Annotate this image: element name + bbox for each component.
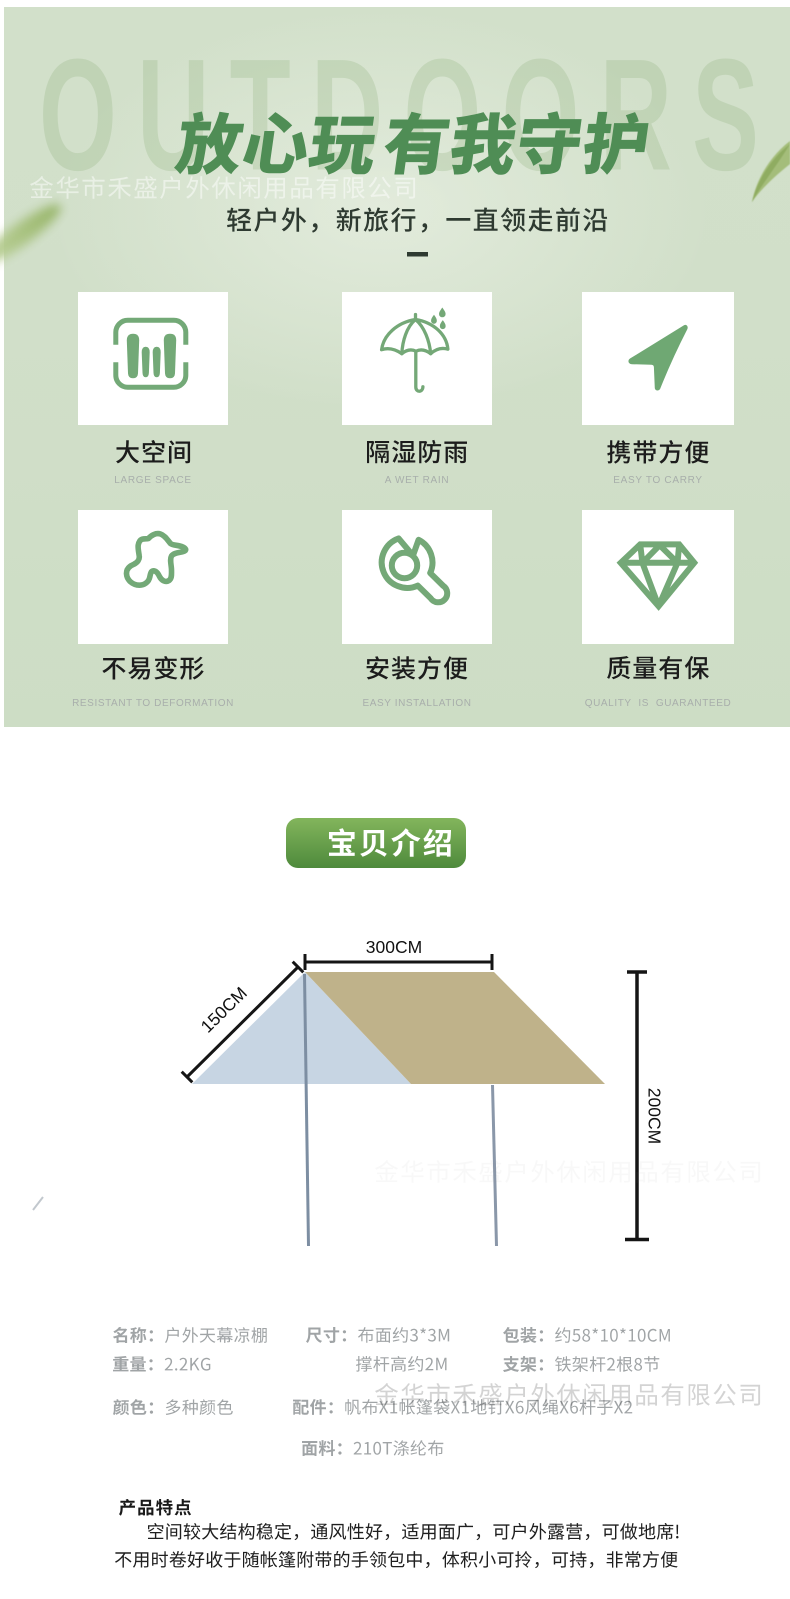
svg-text:300CM: 300CM xyxy=(366,937,422,957)
svg-text:200CM: 200CM xyxy=(645,1088,665,1144)
svg-text:150CM: 150CM xyxy=(197,983,251,1037)
